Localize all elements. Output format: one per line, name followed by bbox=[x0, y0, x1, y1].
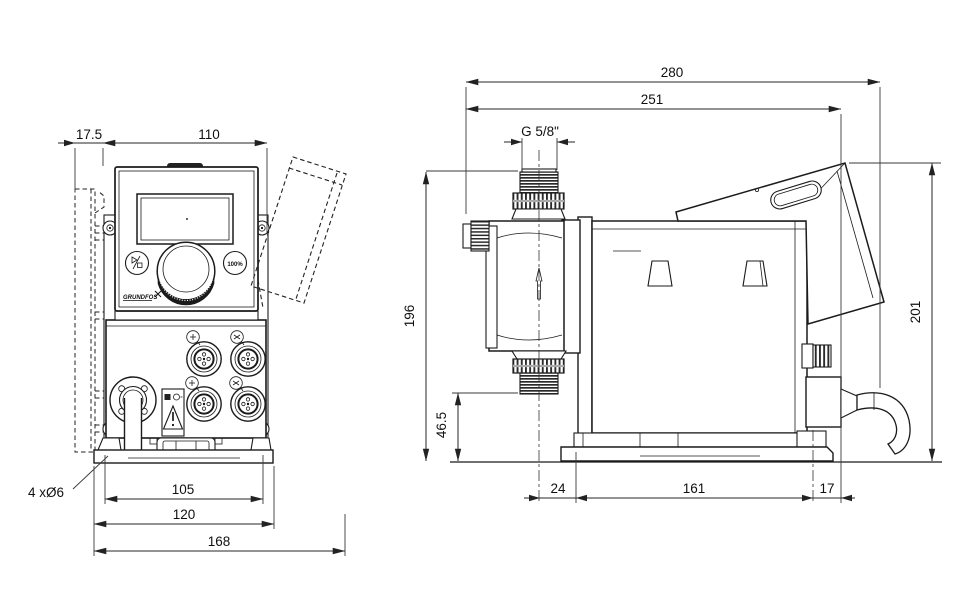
gland-thread bbox=[813, 345, 831, 367]
strain-relief-block bbox=[806, 377, 841, 427]
full-capacity-button[interactable]: 100% bbox=[224, 252, 247, 275]
dim-overall-width: 168 bbox=[208, 534, 231, 549]
dim-connection-thread: G 5/8" bbox=[521, 124, 559, 139]
click-wheel[interactable] bbox=[157, 242, 215, 305]
dim-overall-depth: 280 bbox=[661, 65, 684, 80]
dim-depth-to-cable-gland: 251 bbox=[641, 92, 664, 107]
start-stop-button[interactable] bbox=[126, 252, 149, 275]
brand-text: GRUNDFOS bbox=[123, 295, 157, 301]
side-view: 280 251 G 5/8" 196 46.5 201 24 161 bbox=[402, 65, 942, 503]
dimensional-drawing: 100% GRUNDFOS bbox=[0, 0, 976, 600]
drawing-canvas: 100% GRUNDFOS bbox=[0, 0, 976, 600]
base-plate bbox=[94, 450, 273, 463]
warning-label bbox=[162, 389, 184, 436]
dim-suction-height: 46.5 bbox=[434, 412, 449, 438]
dim-panel-width: 110 bbox=[198, 127, 220, 142]
front-view: 100% GRUNDFOS bbox=[28, 127, 346, 556]
dim-overall-height: 201 bbox=[908, 301, 923, 324]
base-plate bbox=[561, 447, 833, 461]
vent-knob bbox=[743, 261, 767, 286]
dim-base-length: 161 bbox=[683, 481, 706, 496]
dim-discharge-height: 196 bbox=[402, 305, 417, 328]
pump-body bbox=[592, 221, 807, 433]
mounting-base bbox=[94, 438, 273, 463]
control-panel: 100% GRUNDFOS bbox=[115, 163, 258, 311]
dim-base-rear-offset: 17 bbox=[819, 481, 834, 496]
vent-knob bbox=[648, 261, 672, 286]
full-capacity-label: 100% bbox=[227, 262, 243, 268]
connector-port[interactable] bbox=[231, 342, 265, 376]
dim-wall-offset: 17.5 bbox=[76, 127, 102, 142]
side-mounting-base bbox=[561, 431, 833, 461]
priming-valve-knob[interactable] bbox=[463, 221, 489, 251]
dim-mounting-holes: 4 xØ6 bbox=[28, 485, 64, 500]
power-cable bbox=[857, 393, 910, 454]
connector-port[interactable] bbox=[231, 387, 265, 421]
dim-hole-spacing: 105 bbox=[172, 482, 195, 497]
connector-port[interactable] bbox=[187, 342, 221, 376]
discharge-valve bbox=[512, 169, 565, 219]
dim-base-width: 120 bbox=[173, 507, 196, 522]
dim-base-front-offset: 24 bbox=[550, 481, 566, 496]
mounting-holes-leader bbox=[73, 456, 108, 489]
display bbox=[137, 194, 233, 244]
dosing-head bbox=[486, 221, 564, 351]
connector-port[interactable] bbox=[187, 387, 221, 421]
panel-hinge bbox=[115, 311, 258, 320]
